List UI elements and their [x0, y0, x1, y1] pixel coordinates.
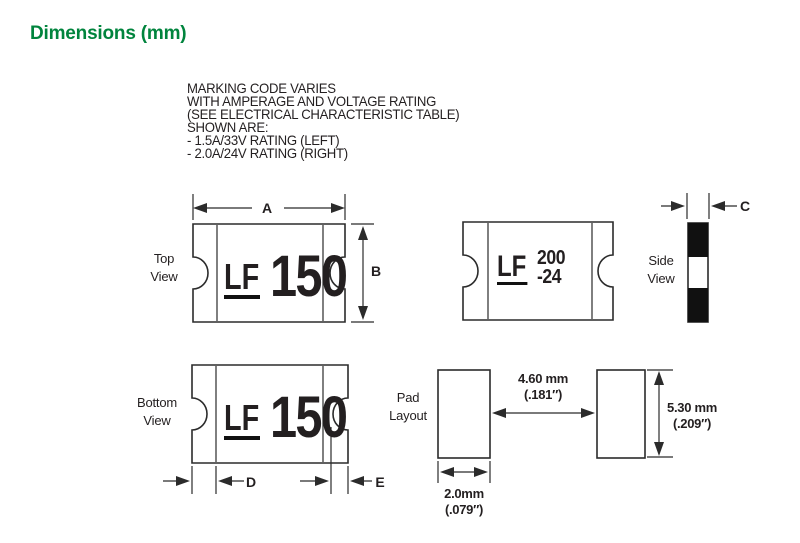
dimensions-drawing-page: Dimensions (mm) MARKING CODE VARIES WITH… — [0, 0, 800, 543]
marking-code: 150 — [270, 248, 346, 306]
page-title: Dimensions (mm) — [30, 23, 186, 45]
side-view-outline — [688, 223, 708, 322]
top-view-label: Top View — [134, 250, 194, 286]
top-view-marking: LF 150 — [224, 248, 361, 306]
note-line: - 2.0A/24V RATING (RIGHT) — [187, 147, 459, 160]
littelfuse-logo: LF — [497, 252, 527, 285]
dim-c-label: C — [736, 198, 754, 214]
dim-d-label: D — [242, 474, 260, 490]
pad-gap-measurement: 4.60 mm (.181″) — [498, 371, 588, 403]
marking-code-note: MARKING CODE VARIES WITH AMPERAGE AND VO… — [187, 82, 459, 161]
pad-width-measurement: 2.0mm (.079″) — [433, 486, 495, 518]
littelfuse-logo: LF — [224, 400, 260, 440]
pad-gap-dimension-lines — [492, 408, 595, 418]
dim-b-label: B — [367, 263, 385, 279]
pad-height-measurement: 5.30 mm (.209″) — [662, 400, 722, 432]
marking-code: 150 — [270, 389, 346, 447]
marking-code: 200 -24 — [537, 249, 565, 287]
dimension-c-lines — [661, 193, 737, 219]
pad-width-dimension-lines — [438, 461, 490, 483]
bottom-view-marking: LF 150 — [224, 389, 361, 447]
dim-a-label: A — [258, 200, 276, 216]
right-part-marking: LF 200 -24 — [497, 249, 569, 287]
bottom-view-label: Bottom View — [127, 394, 187, 430]
littelfuse-logo: LF — [224, 259, 260, 299]
dim-e-label: E — [371, 474, 389, 490]
dimension-d-lines — [163, 466, 244, 494]
pad-layout-label: Pad Layout — [378, 389, 438, 425]
side-view-label: Side View — [631, 252, 691, 288]
